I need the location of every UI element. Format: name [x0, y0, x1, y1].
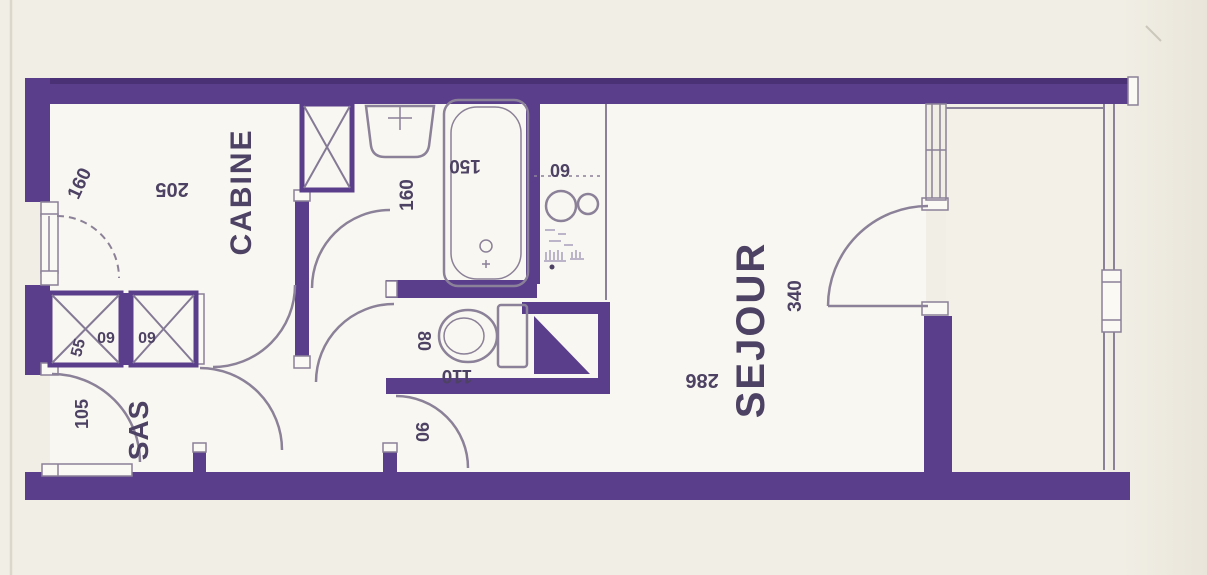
wall-duct-top: [522, 302, 610, 314]
entry-sill: [42, 464, 132, 476]
label-closet2-width: 60: [138, 328, 156, 345]
label-cabine-width: 205: [155, 178, 188, 200]
balcony-floor: [946, 104, 1108, 472]
drain-dot: [550, 265, 555, 270]
label-cabine: CABINE: [225, 128, 258, 255]
wall-sejour-window-lower: [924, 316, 952, 472]
glazing-lines: [926, 104, 946, 198]
label-closet1-width: 60: [97, 328, 115, 345]
wall-wc-bottom: [386, 378, 610, 394]
cap-bath-wall-end: [386, 281, 397, 297]
label-bathtub: 150: [449, 155, 481, 176]
wall-left-mid: [25, 285, 50, 375]
cap-top-wall-end: [1128, 77, 1138, 105]
cap-cabine-wall-bottom: [294, 356, 310, 368]
label-sas-door: 105: [72, 399, 92, 429]
wall-cabine-right: [295, 190, 309, 368]
cap-sas-jamb: [193, 443, 206, 452]
glazing-frame: [926, 104, 946, 200]
page-fold-mark: [1146, 26, 1161, 41]
balcony-rail-detail: [1102, 270, 1121, 332]
scanned-page: CABINE 205 160 160 150 60 55 60 60 SAS 1…: [0, 0, 1207, 575]
label-sejour-width: 340: [785, 280, 806, 312]
cap-sejour-jamb: [383, 443, 397, 452]
label-wc-width: 80: [414, 331, 434, 351]
label-sejour-length: 286: [685, 369, 718, 391]
cap-glazing-bottom: [922, 302, 948, 315]
label-bath-width: 160: [397, 179, 418, 211]
window-cap-bottom: [41, 271, 58, 285]
wall-bottom: [25, 472, 1130, 500]
label-sas: SAS: [123, 400, 154, 461]
wall-top-shade: [25, 78, 1128, 84]
label-sejour-door: 90: [412, 422, 432, 442]
label-kitchen-counter: 60: [550, 160, 570, 180]
floor-plan: CABINE 205 160 160 150 60 55 60 60 SAS 1…: [0, 0, 1207, 575]
wall-bath-bottom: [386, 280, 537, 298]
label-sejour: SEJOUR: [729, 242, 773, 419]
wall-left-upper: [25, 78, 50, 202]
label-wc-length: 110: [442, 365, 473, 386]
